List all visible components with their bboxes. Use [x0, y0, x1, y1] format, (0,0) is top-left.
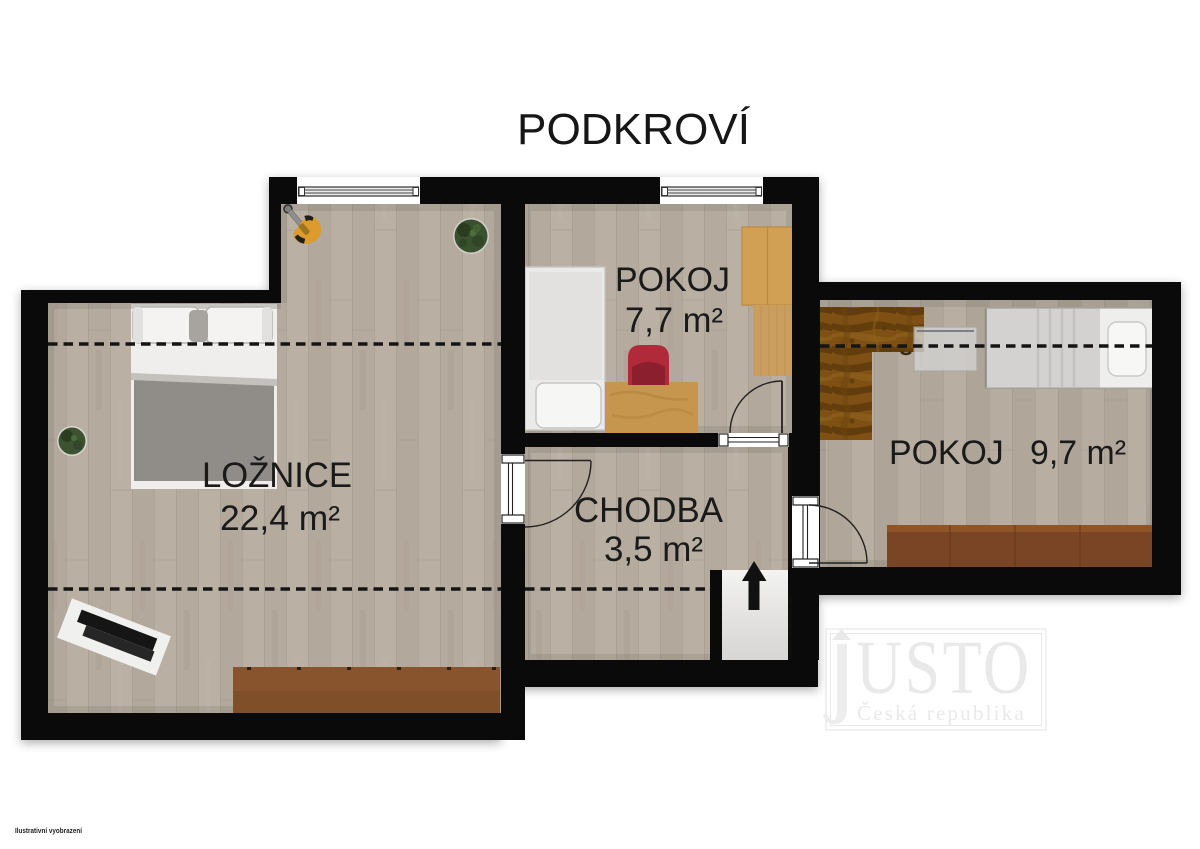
svg-text:3,5 m²: 3,5 m² [604, 530, 703, 569]
svg-text:PODKROVÍ: PODKROVÍ [517, 105, 751, 154]
svg-text:POKOJ: POKOJ [615, 261, 730, 299]
svg-text:POKOJ 9,7 m²: POKOJ 9,7 m² [889, 434, 1126, 472]
svg-text:22,4 m²: 22,4 m² [220, 499, 340, 538]
svg-text:7,7 m²: 7,7 m² [625, 301, 723, 340]
svg-text:CHODBA: CHODBA [574, 491, 724, 530]
svg-text:LOŽNICE: LOŽNICE [202, 456, 352, 495]
svg-text:USTO: USTO [856, 626, 1032, 710]
svg-text:Česká republika: Česká republika [857, 701, 1026, 725]
svg-text:Ilustrativní vyobrazení: Ilustrativní vyobrazení [15, 826, 83, 835]
